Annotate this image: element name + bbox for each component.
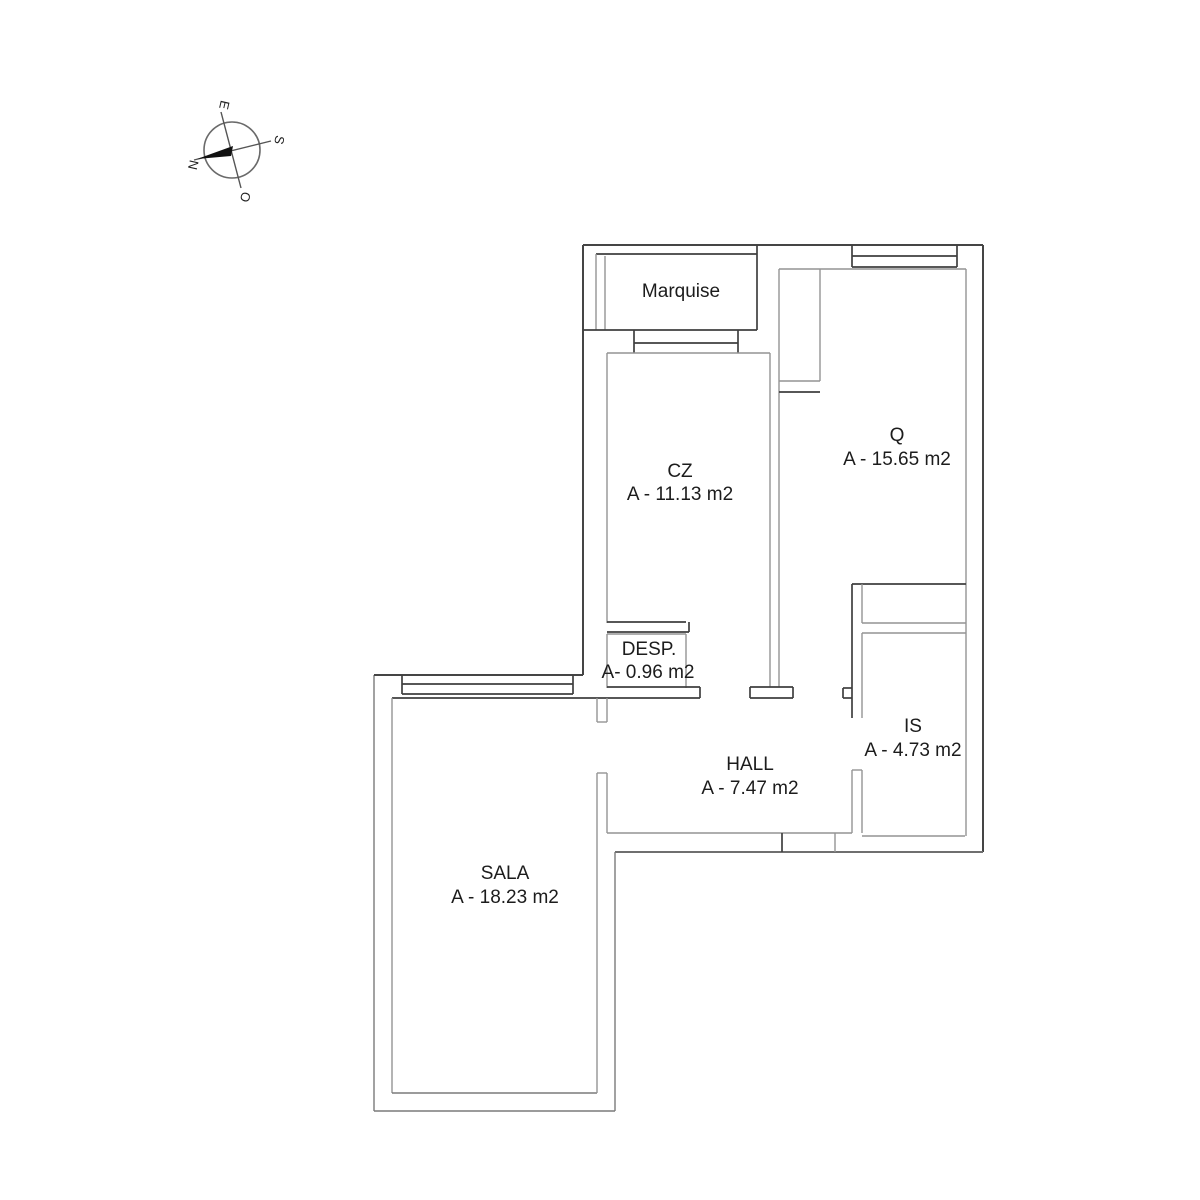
compass-label-s: S <box>271 134 288 146</box>
label-marquise: Marquise <box>642 281 720 302</box>
label-sala-area: A - 18.23 m2 <box>451 887 559 908</box>
hall-walls <box>392 687 852 852</box>
room-labels: Marquise CZ A - 11.13 m2 Q A - 15.65 m2 … <box>451 281 961 908</box>
label-hall-name: HALL <box>726 754 774 775</box>
room-sala <box>392 675 607 1093</box>
label-sala-name: SALA <box>481 863 530 884</box>
floorplan-canvas: E S N O <box>0 0 1200 1200</box>
label-cz-area: A - 11.13 m2 <box>627 484 733 505</box>
label-q-area: A - 15.65 m2 <box>843 449 951 470</box>
label-is-name: IS <box>904 716 922 737</box>
label-is-area: A - 4.73 m2 <box>864 740 961 761</box>
compass-label-n: N <box>185 159 202 172</box>
label-cz-name: CZ <box>667 461 693 482</box>
label-desp-area: A- 0.96 m2 <box>602 662 695 683</box>
compass-label-e: E <box>216 99 233 111</box>
label-desp-name: DESP. <box>622 639 677 660</box>
compass-label-o: O <box>237 190 254 203</box>
label-hall-area: A - 7.47 m2 <box>701 778 798 799</box>
compass-needle-icon <box>197 146 233 159</box>
compass-rose: E S N O <box>185 99 288 204</box>
room-cz <box>607 269 779 687</box>
label-q-name: Q <box>890 425 905 446</box>
